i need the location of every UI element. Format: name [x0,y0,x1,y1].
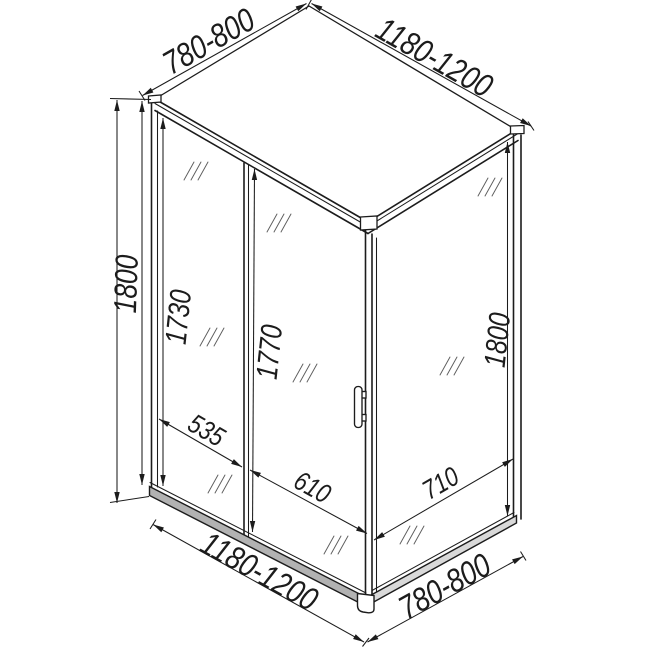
corner-foot [358,594,375,613]
back-right-cap [511,126,525,135]
door-divider-post [244,163,249,541]
shower-enclosure-diagram: 780-800 1180-1200 1800 1730 1770 1800 53… [0,0,650,650]
front-left-post [152,100,158,489]
front-right-cap [361,216,378,230]
glass-shine-hatches [184,162,502,554]
dim-label-fixed-panel-height: 1730 [158,287,198,346]
dim-label-fixed-panel-width: 535 [183,409,230,453]
dim-label-side-width: 710 [418,462,465,506]
side-top-rail [368,129,518,234]
front-right-corner-post [366,222,377,601]
dimension-labels: 780-800 1180-1200 1800 1730 1770 1800 53… [108,2,516,627]
dim-label-door-height: 1770 [249,322,289,381]
dim-label-top-depth: 780-800 [157,2,261,82]
door-handle [355,387,367,428]
diagram-canvas: 780-800 1180-1200 1800 1730 1770 1800 53… [0,0,650,650]
front-top-rail [155,99,368,234]
dim-label-overall-height: 1800 [108,254,145,314]
dim-label-top-width: 1180-1200 [370,11,499,105]
handle-bar [355,387,363,428]
dim-label-side-height: 1800 [477,310,517,369]
dim-label-door-width: 610 [289,466,336,510]
